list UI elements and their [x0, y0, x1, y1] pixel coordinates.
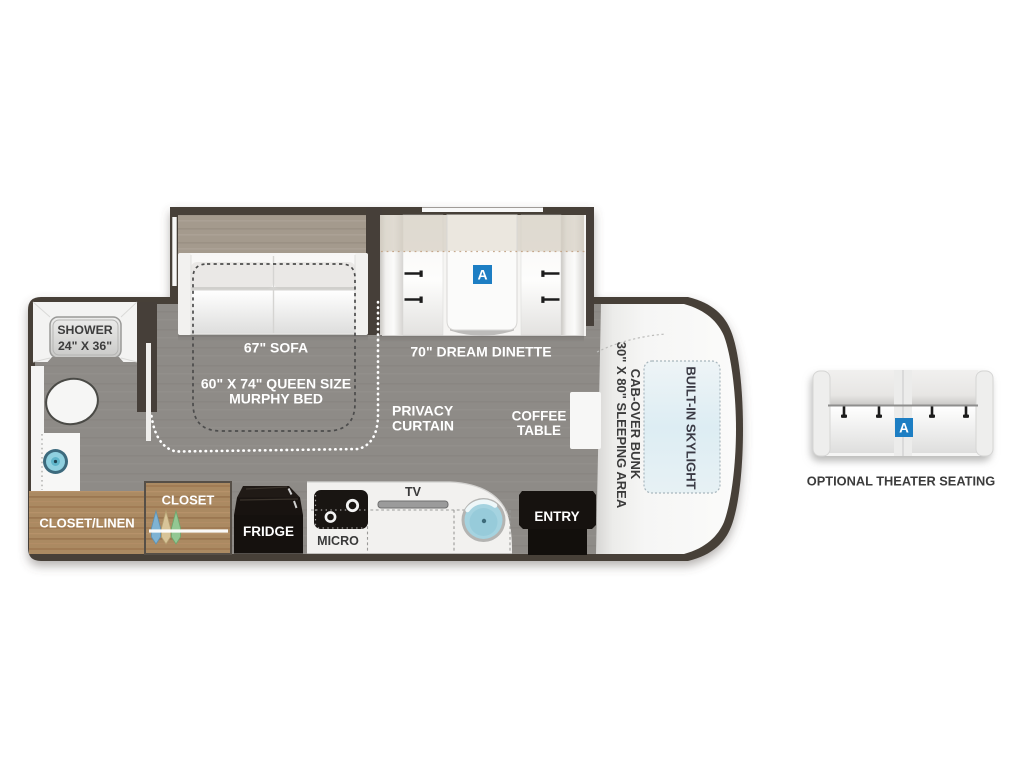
svg-text:30" X 80" SLEEPING AREA: 30" X 80" SLEEPING AREA — [614, 342, 629, 509]
svg-text:CLOSET/LINEN: CLOSET/LINEN — [39, 516, 134, 531]
svg-text:OPTIONAL THEATER SEATING: OPTIONAL THEATER SEATING — [807, 474, 995, 489]
svg-text:MICRO: MICRO — [317, 534, 359, 548]
svg-text:A: A — [899, 421, 909, 436]
svg-text:MURPHY BED: MURPHY BED — [229, 391, 323, 407]
svg-text:CURTAIN: CURTAIN — [392, 418, 454, 434]
svg-text:BUILT-IN SKYLIGHT: BUILT-IN SKYLIGHT — [684, 366, 699, 489]
svg-text:60" X 74" QUEEN SIZE: 60" X 74" QUEEN SIZE — [201, 376, 351, 392]
svg-text:24" X 36": 24" X 36" — [58, 339, 112, 353]
svg-text:CLOSET: CLOSET — [162, 493, 215, 508]
svg-text:70" DREAM DINETTE: 70" DREAM DINETTE — [410, 344, 551, 360]
svg-text:FRIDGE: FRIDGE — [243, 524, 294, 539]
svg-text:SHOWER: SHOWER — [57, 323, 112, 337]
svg-text:ENTRY: ENTRY — [534, 509, 579, 524]
svg-text:COFFEE: COFFEE — [512, 409, 567, 424]
svg-text:67" SOFA: 67" SOFA — [244, 340, 308, 356]
svg-text:A: A — [477, 267, 487, 283]
svg-text:PRIVACY: PRIVACY — [392, 403, 454, 419]
svg-text:CAB-OVER BUNK: CAB-OVER BUNK — [628, 369, 643, 480]
svg-text:TABLE: TABLE — [517, 423, 561, 438]
svg-text:TV: TV — [405, 485, 422, 499]
